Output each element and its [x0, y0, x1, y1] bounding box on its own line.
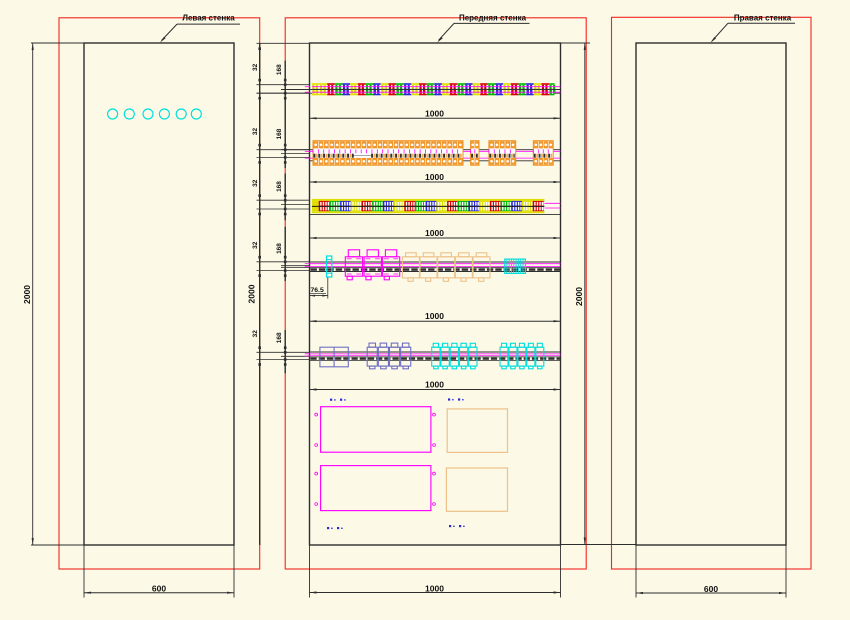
svg-text:600: 600 [152, 584, 166, 594]
svg-text:1000: 1000 [425, 311, 444, 321]
svg-text:76.5: 76.5 [311, 287, 324, 294]
svg-text:1000: 1000 [425, 108, 444, 118]
svg-text:168: 168 [276, 64, 283, 75]
svg-text:168: 168 [276, 243, 283, 254]
svg-text:2000: 2000 [22, 285, 32, 304]
svg-text:2000: 2000 [247, 284, 257, 303]
svg-text:1000: 1000 [425, 584, 444, 594]
svg-text:32: 32 [252, 241, 259, 249]
svg-text:1000: 1000 [425, 380, 444, 390]
svg-text:32: 32 [252, 63, 259, 71]
svg-text:Левая стенка: Левая стенка [182, 14, 235, 23]
svg-text:1000: 1000 [425, 228, 444, 238]
svg-text:168: 168 [276, 128, 283, 139]
svg-text:600: 600 [704, 584, 718, 594]
svg-text:1000: 1000 [425, 172, 444, 182]
svg-text:168: 168 [276, 181, 283, 192]
svg-text:2000: 2000 [574, 287, 584, 306]
svg-text:Правая стенка: Правая стенка [734, 14, 792, 23]
svg-text:32: 32 [252, 179, 259, 187]
svg-text:32: 32 [252, 330, 259, 338]
svg-text:32: 32 [252, 128, 259, 136]
svg-text:168: 168 [276, 332, 283, 343]
svg-text:Передняя стенка: Передняя стенка [459, 14, 527, 23]
